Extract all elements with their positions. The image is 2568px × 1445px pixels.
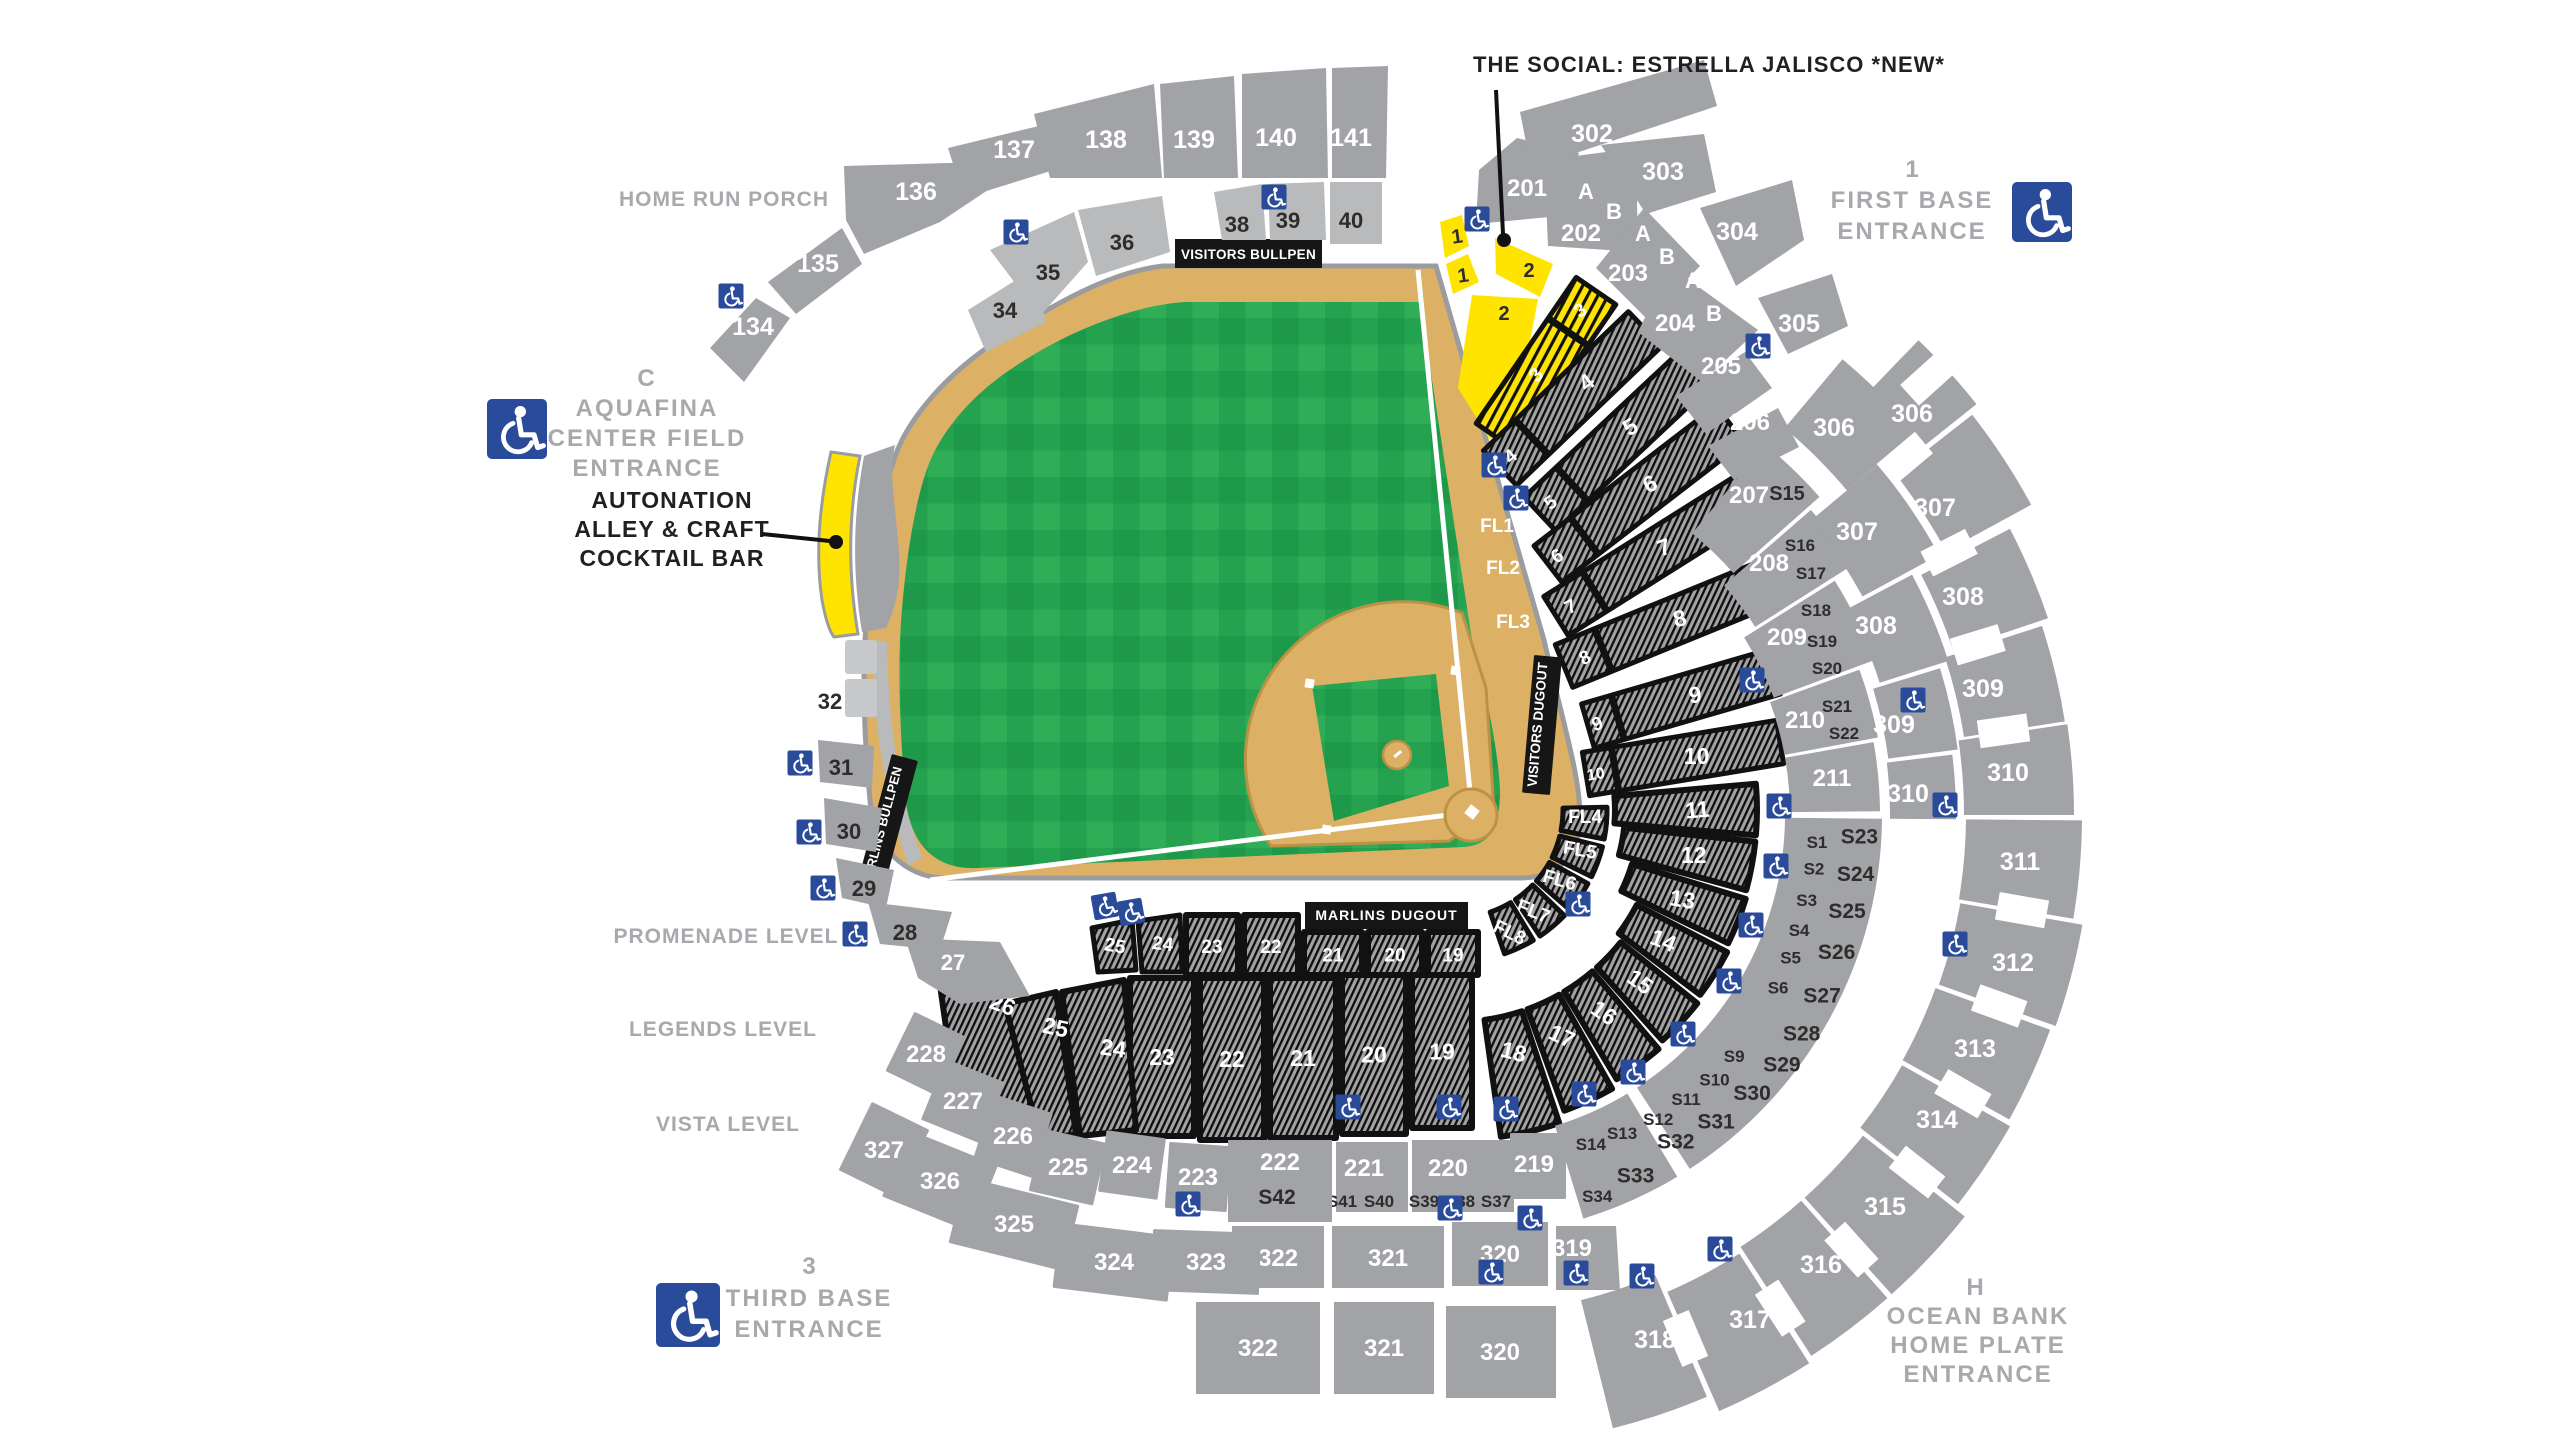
svg-text:306: 306 [1891,400,1933,428]
svg-text:310: 310 [1987,759,2029,787]
svg-text:S30: S30 [1733,1082,1770,1105]
svg-text:205: 205 [1701,353,1741,380]
svg-text:311: 311 [2000,848,2040,876]
svg-text:ENTRANCE: ENTRANCE [1837,218,1986,245]
svg-text:325: 325 [994,1211,1034,1238]
svg-text:13: 13 [1668,884,1698,914]
svg-text:140: 140 [1255,124,1297,152]
svg-text:323: 323 [1186,1249,1226,1276]
svg-text:S27: S27 [1803,984,1840,1007]
svg-text:LEGENDS LEVEL: LEGENDS LEVEL [629,1018,817,1041]
svg-text:FL11: FL11 [1137,881,1183,903]
svg-text:326: 326 [920,1168,960,1195]
svg-text:C: C [637,365,656,392]
svg-text:12: 12 [1681,842,1707,868]
svg-text:S13: S13 [1607,1124,1637,1143]
svg-text:S14: S14 [1576,1135,1607,1154]
svg-text:ENTRANCE: ENTRANCE [1903,1361,2052,1388]
svg-text:227: 227 [943,1088,983,1115]
svg-text:A: A [1685,268,1701,293]
svg-text:S11: S11 [1671,1090,1700,1109]
svg-text:309: 309 [1962,675,2004,703]
svg-text:S12: S12 [1643,1110,1673,1129]
svg-text:THE SOCIAL: ESTRELLA JALISCO *: THE SOCIAL: ESTRELLA JALISCO *NEW* [1473,52,1945,77]
svg-text:S19: S19 [1807,632,1837,651]
svg-text:136: 136 [895,178,937,206]
svg-text:134: 134 [732,313,774,341]
svg-text:38: 38 [1225,212,1249,237]
svg-text:S22: S22 [1829,724,1859,743]
svg-text:226: 226 [993,1123,1033,1150]
svg-text:CENTER FIELD: CENTER FIELD [548,425,747,452]
svg-text:207: 207 [1729,482,1769,509]
svg-text:3: 3 [802,1253,817,1280]
svg-text:32: 32 [818,689,842,714]
svg-text:36: 36 [1110,230,1134,255]
svg-text:S26: S26 [1818,941,1855,964]
svg-text:31: 31 [829,755,853,780]
svg-text:203: 203 [1608,260,1648,287]
svg-text:319: 319 [1552,1235,1592,1262]
svg-text:H: H [1966,1274,1985,1301]
svg-text:317: 317 [1729,1306,1771,1334]
svg-text:21: 21 [1322,946,1344,967]
svg-text:B: B [1659,244,1675,269]
svg-text:FL1: FL1 [1480,516,1514,537]
svg-text:19: 19 [1442,946,1463,967]
svg-text:307: 307 [1836,518,1878,546]
svg-text:10: 10 [1586,765,1607,785]
svg-text:27: 27 [941,950,965,975]
svg-text:S4: S4 [1789,921,1810,940]
svg-text:1: 1 [1905,156,1920,183]
svg-text:S2: S2 [1804,860,1825,879]
svg-text:S42: S42 [1258,1186,1295,1209]
svg-text:11: 11 [1684,796,1711,824]
svg-text:S28: S28 [1783,1022,1821,1045]
svg-text:201: 201 [1507,175,1547,202]
svg-text:S20: S20 [1812,659,1842,678]
svg-text:S18: S18 [1801,601,1831,620]
svg-text:321: 321 [1364,1335,1404,1362]
svg-text:S25: S25 [1828,900,1866,923]
svg-text:ALLEY & CRAFT: ALLEY & CRAFT [574,516,769,542]
svg-text:138: 138 [1085,126,1127,154]
svg-text:S21: S21 [1822,697,1852,716]
svg-text:40: 40 [1339,208,1363,233]
svg-text:FL4: FL4 [1568,807,1602,828]
svg-text:220: 220 [1428,1155,1468,1182]
svg-text:208: 208 [1749,550,1789,577]
svg-text:COCKTAIL BAR: COCKTAIL BAR [580,545,765,571]
svg-text:S6: S6 [1768,979,1789,998]
svg-text:30: 30 [837,819,861,844]
svg-text:39: 39 [1276,208,1300,233]
svg-text:209: 209 [1767,624,1807,651]
svg-text:302: 302 [1571,120,1613,148]
svg-text:S23: S23 [1841,825,1878,848]
svg-text:S5: S5 [1780,948,1801,967]
svg-text:19: 19 [1429,1039,1455,1065]
svg-text:S33: S33 [1617,1165,1654,1188]
svg-text:20: 20 [1361,1042,1387,1068]
svg-text:221: 221 [1344,1155,1384,1182]
svg-text:VISTA LEVEL: VISTA LEVEL [656,1113,800,1136]
svg-text:24: 24 [1099,1033,1128,1062]
svg-text:314: 314 [1916,1106,1958,1134]
svg-text:OCEAN BANK: OCEAN BANK [1887,1303,2070,1330]
svg-text:137: 137 [993,136,1035,164]
svg-text:HOME RUN PORCH: HOME RUN PORCH [619,188,829,211]
svg-text:316: 316 [1800,1251,1842,1279]
svg-text:VISITORS BULLPEN: VISITORS BULLPEN [1181,247,1316,262]
svg-text:219: 219 [1514,1151,1554,1178]
svg-text:139: 139 [1173,126,1215,154]
svg-text:S16: S16 [1785,536,1815,555]
svg-text:S32: S32 [1657,1130,1694,1153]
svg-text:PROMENADE LEVEL: PROMENADE LEVEL [613,925,838,948]
svg-text:S17: S17 [1796,564,1826,583]
svg-text:21: 21 [1290,1045,1316,1071]
svg-text:S1: S1 [1807,833,1828,852]
svg-text:23: 23 [1149,1044,1175,1070]
svg-text:222: 222 [1260,1149,1300,1176]
svg-text:202: 202 [1561,220,1601,247]
svg-text:228: 228 [906,1041,946,1068]
svg-text:224: 224 [1112,1152,1153,1179]
svg-text:B: B [1706,301,1722,326]
svg-text:312: 312 [1992,949,2034,977]
svg-text:S24: S24 [1837,863,1875,886]
svg-text:FL9: FL9 [1256,881,1292,903]
svg-text:29: 29 [852,876,876,901]
svg-text:322: 322 [1238,1335,1278,1362]
svg-text:2: 2 [1523,260,1534,282]
svg-text:23: 23 [1201,937,1222,958]
svg-text:308: 308 [1855,612,1897,640]
svg-text:24: 24 [1151,933,1175,956]
svg-text:THIRD BASE: THIRD BASE [726,1285,893,1312]
svg-text:S31: S31 [1697,1110,1735,1133]
svg-text:9: 9 [1687,681,1702,708]
svg-text:20: 20 [1384,946,1405,967]
svg-text:25: 25 [1103,934,1128,958]
svg-text:S34: S34 [1582,1187,1613,1206]
svg-text:A: A [1635,221,1651,246]
svg-text:22: 22 [1260,937,1281,958]
svg-text:320: 320 [1480,1339,1520,1366]
svg-text:309: 309 [1873,711,1915,739]
svg-text:206: 206 [1730,409,1770,436]
svg-text:324: 324 [1094,1249,1135,1276]
svg-text:ENTRANCE: ENTRANCE [734,1316,883,1343]
svg-text:306: 306 [1813,414,1855,442]
svg-text:S39: S39 [1409,1192,1439,1211]
svg-text:ENTRANCE: ENTRANCE [572,455,721,482]
svg-text:35: 35 [1036,260,1060,285]
svg-text:135: 135 [797,250,839,278]
svg-text:S15: S15 [1769,483,1805,505]
svg-text:304: 304 [1716,218,1758,246]
svg-text:FL10: FL10 [1193,881,1240,903]
svg-text:S37: S37 [1481,1192,1511,1211]
svg-text:307: 307 [1914,494,1956,522]
svg-text:303: 303 [1642,158,1684,186]
svg-text:AUTONATION: AUTONATION [591,487,752,513]
svg-text:315: 315 [1864,1193,1906,1221]
svg-text:321: 321 [1368,1245,1408,1272]
svg-text:141: 141 [1330,124,1372,152]
svg-text:305: 305 [1778,310,1820,338]
svg-text:HOME PLATE: HOME PLATE [1890,1332,2066,1359]
svg-text:22: 22 [1219,1046,1245,1072]
svg-text:225: 225 [1048,1154,1088,1181]
svg-text:313: 313 [1954,1035,1996,1063]
svg-text:A: A [1578,179,1594,204]
svg-text:B: B [1606,199,1622,224]
svg-text:S29: S29 [1763,1054,1800,1077]
svg-text:2: 2 [1498,303,1509,325]
svg-text:28: 28 [893,920,917,945]
svg-text:MARLINS DUGOUT: MARLINS DUGOUT [1315,907,1457,923]
svg-text:211: 211 [1813,765,1852,792]
svg-text:34: 34 [993,298,1018,323]
svg-text:310: 310 [1887,780,1929,808]
svg-text:10: 10 [1684,743,1710,769]
svg-text:322: 322 [1258,1245,1298,1272]
svg-text:327: 327 [864,1137,904,1164]
svg-text:204: 204 [1655,310,1696,337]
svg-text:S40: S40 [1364,1192,1394,1211]
svg-text:223: 223 [1178,1164,1218,1191]
svg-text:FL3: FL3 [1496,612,1530,633]
svg-text:S10: S10 [1699,1070,1729,1089]
svg-text:210: 210 [1785,707,1825,734]
svg-text:FL2: FL2 [1486,558,1520,579]
svg-text:FIRST BASE: FIRST BASE [1831,187,1994,214]
svg-text:308: 308 [1942,583,1984,611]
svg-text:AQUAFINA: AQUAFINA [576,395,719,422]
svg-text:S9: S9 [1724,1047,1745,1066]
svg-text:S3: S3 [1796,891,1817,910]
